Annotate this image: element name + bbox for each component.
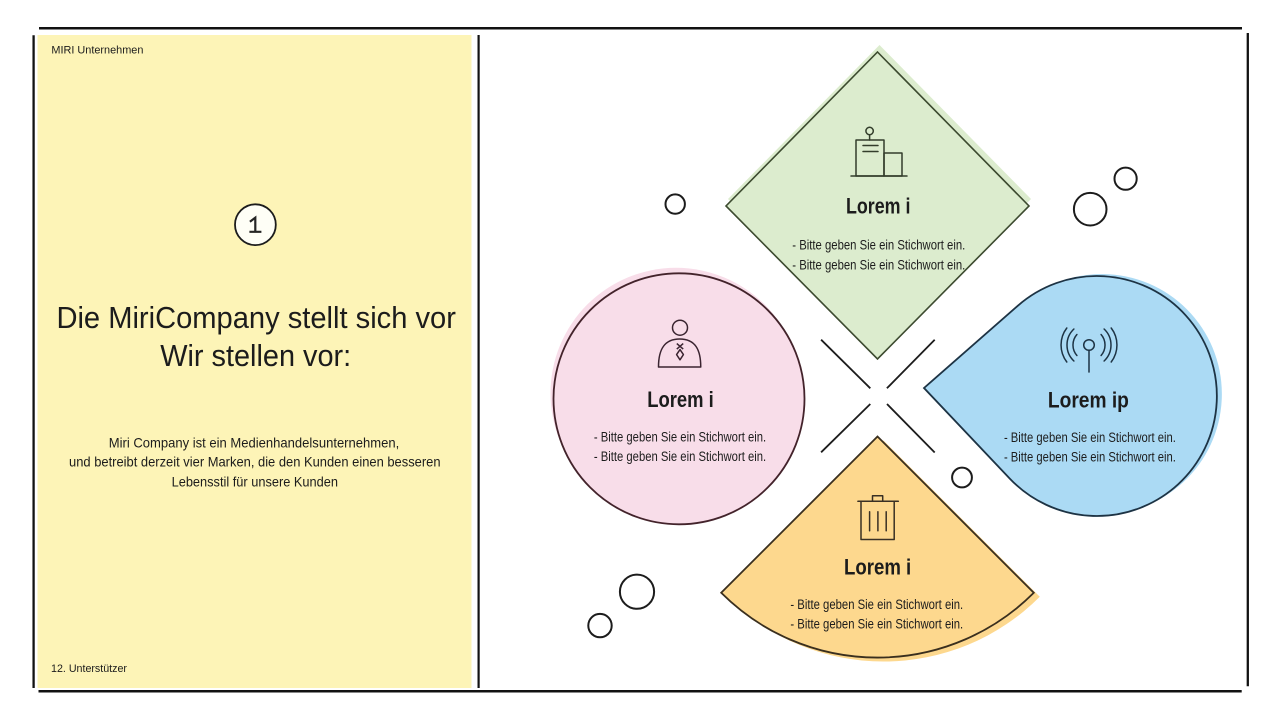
svg-text:MIRI Unternehmen: MIRI Unternehmen <box>51 44 143 56</box>
svg-text:Die MiriCompany stellt sich vo: Die MiriCompany stellt sich vor <box>56 300 456 335</box>
svg-text:12. Unterstützer: 12. Unterstützer <box>51 663 127 675</box>
svg-text:Miri Company ist ein Medienhan: Miri Company ist ein Medienhandelsuntern… <box>109 435 400 450</box>
svg-text:und betreibt derzeit vier Mark: und betreibt derzeit vier Marken, die de… <box>69 455 441 470</box>
svg-text:Lorem i: Lorem i <box>647 387 714 412</box>
svg-text:Lorem i: Lorem i <box>844 555 911 580</box>
svg-text:Lorem ip: Lorem ip <box>1048 387 1129 412</box>
svg-text:- Bitte geben Sie ein Stichwor: - Bitte geben Sie ein Stichwort ein. <box>790 616 963 631</box>
svg-text:- Bitte geben Sie ein Stichwor: - Bitte geben Sie ein Stichwort ein. <box>594 429 766 444</box>
svg-text:- Bitte geben Sie ein Stichwor: - Bitte geben Sie ein Stichwort ein. <box>594 449 766 464</box>
svg-text:Wir stellen vor:: Wir stellen vor: <box>160 338 351 373</box>
svg-text:Lorem i: Lorem i <box>846 193 911 218</box>
svg-text:- Bitte geben Sie ein Stichwor: - Bitte geben Sie ein Stichwort ein. <box>792 238 965 253</box>
svg-text:Lebensstil für unsere Kunden: Lebensstil für unsere Kunden <box>172 474 338 489</box>
svg-text:- Bitte geben Sie ein Stichwor: - Bitte geben Sie ein Stichwort ein. <box>1004 450 1176 465</box>
svg-text:- Bitte geben Sie ein Stichwor: - Bitte geben Sie ein Stichwort ein. <box>792 257 965 272</box>
svg-text:- Bitte geben Sie ein Stichwor: - Bitte geben Sie ein Stichwort ein. <box>1004 430 1176 445</box>
svg-text:- Bitte geben Sie ein Stichwor: - Bitte geben Sie ein Stichwort ein. <box>790 597 963 612</box>
